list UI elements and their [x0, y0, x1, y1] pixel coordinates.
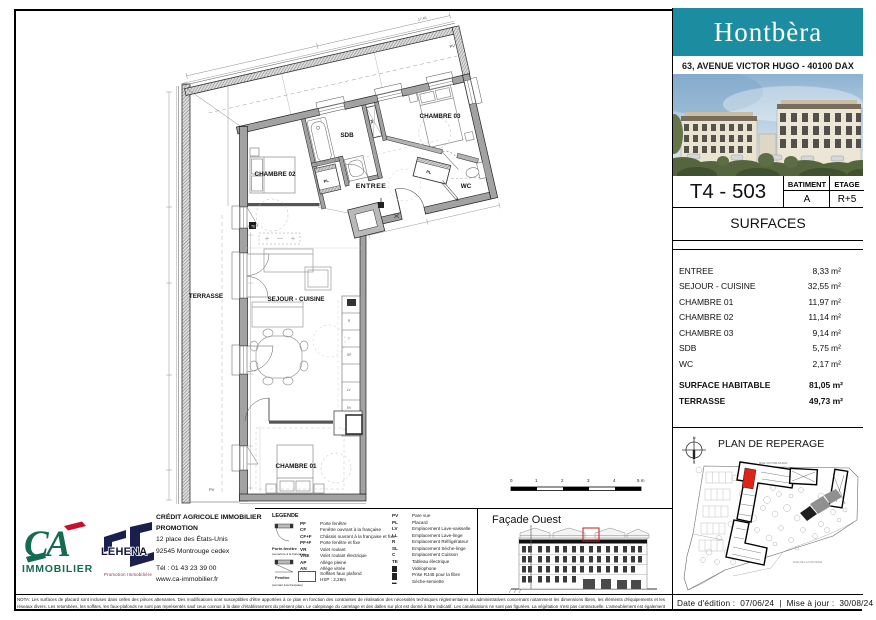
svg-text:CHAMBRE 02: CHAMBRE 02 — [255, 171, 296, 178]
svg-text:0: 0 — [510, 478, 513, 483]
svg-text:SDB: SDB — [340, 132, 354, 139]
svg-text:N: N — [693, 436, 696, 440]
svg-text:4: 4 — [613, 478, 616, 483]
svg-text:RUE DE LA FONTAINE: RUE DE LA FONTAINE — [793, 560, 822, 564]
svg-text:5 m: 5 m — [637, 478, 645, 483]
svg-text:LEHENA: LEHENA — [101, 546, 147, 558]
svg-text:Promotion Immobilière: Promotion Immobilière — [104, 572, 153, 577]
svg-text:LV: LV — [347, 388, 352, 392]
svg-text:17,45: 17,45 — [418, 16, 427, 22]
svg-text:SP: SP — [347, 353, 351, 357]
svg-text:R: R — [348, 319, 351, 323]
svg-text:Porte-fenêtre: Porte-fenêtre — [272, 546, 298, 551]
svg-text:TE: TE — [251, 225, 256, 229]
svg-text:(ouvrant à la française): (ouvrant à la française) — [272, 583, 303, 587]
svg-text:IMMOBILIER: IMMOBILIER — [22, 563, 93, 575]
svg-text:CHAMBRE 03: CHAMBRE 03 — [420, 113, 461, 120]
svg-text:EV: EV — [347, 406, 352, 410]
svg-text:3: 3 — [587, 478, 590, 483]
svg-text:PV: PV — [449, 43, 456, 49]
svg-text:ENTREE: ENTREE — [356, 183, 387, 190]
svg-text:RUE VICTOR HUGO: RUE VICTOR HUGO — [759, 461, 788, 465]
svg-text:Fenêtre: Fenêtre — [275, 575, 290, 580]
svg-text:TERRASSE: TERRASSE — [189, 293, 223, 300]
svg-text:T: T — [348, 337, 350, 341]
svg-text:WC: WC — [461, 183, 472, 190]
svg-text:2: 2 — [561, 478, 564, 483]
svg-text:SEJOUR - CUISINE: SEJOUR - CUISINE — [267, 296, 324, 303]
svg-text:PV: PV — [209, 487, 215, 492]
svg-text:1: 1 — [535, 478, 538, 483]
svg-text:CHAMBRE 01: CHAMBRE 01 — [276, 463, 317, 470]
